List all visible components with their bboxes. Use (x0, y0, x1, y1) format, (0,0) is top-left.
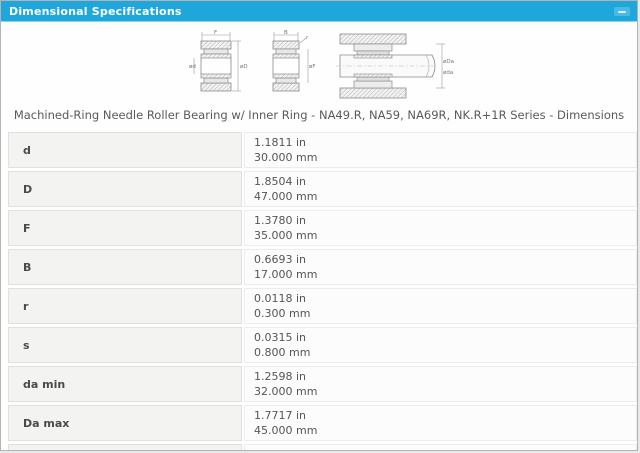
minus-glyph (618, 11, 626, 13)
dimension-value: 0.0118 in 0.300 mm (244, 288, 637, 324)
value-millimeters: 17.000 mm (254, 267, 636, 282)
svg-text:øda: øda (443, 70, 453, 76)
panel-header: Dimensional Specifications (1, 1, 637, 22)
dimension-symbol: d (8, 132, 242, 168)
dimension-symbol: D (8, 171, 242, 207)
dimension-symbol: r (8, 288, 242, 324)
svg-text:F: F (214, 30, 217, 36)
table-row: B 0.6693 in 17.000 mm (8, 249, 637, 285)
dimension-value: 0.0118 in 0.300 mm (244, 444, 637, 451)
bearing-diagrams: F ød øD (1, 29, 637, 101)
dimension-symbol: F (8, 210, 242, 246)
value-millimeters: 0.800 mm (254, 345, 636, 360)
value-millimeters: 45.000 mm (254, 423, 636, 438)
dimensions-table: d 1.1811 in 30.000 mm D 1.8504 in 47.000… (6, 129, 638, 451)
svg-text:øD: øD (240, 64, 248, 70)
dimension-value: 1.7717 in 45.000 mm (244, 405, 637, 441)
value-inches: 1.8504 in (254, 174, 636, 189)
svg-text:r: r (306, 35, 309, 41)
collapse-icon[interactable] (614, 7, 630, 16)
dimension-value: 0.0315 in 0.800 mm (244, 327, 637, 363)
table-row: r 0.0118 in 0.300 mm (8, 288, 637, 324)
panel-body: F ød øD (1, 22, 637, 451)
dimension-symbol: da min (8, 366, 242, 402)
table-row: F 1.3780 in 35.000 mm (8, 210, 637, 246)
dimension-symbol: s (8, 327, 242, 363)
svg-text:øDa: øDa (443, 59, 454, 65)
value-millimeters: 32.000 mm (254, 384, 636, 399)
value-inches: 1.2598 in (254, 369, 636, 384)
dimensional-specifications-panel: Dimensional Specifications F (0, 0, 638, 451)
dimension-value: 0.6693 in 17.000 mm (244, 249, 637, 285)
dimension-value: 1.8504 in 47.000 mm (244, 171, 637, 207)
table-row: s 0.0315 in 0.800 mm (8, 327, 637, 363)
table-row: da min 1.2598 in 32.000 mm (8, 366, 637, 402)
dimension-value: 1.1811 in 30.000 mm (244, 132, 637, 168)
dimension-symbol: B (8, 249, 242, 285)
value-millimeters: 0.300 mm (254, 306, 636, 321)
value-inches: 1.7717 in (254, 408, 636, 423)
svg-text:B: B (284, 30, 288, 36)
value-millimeters: 30.000 mm (254, 150, 636, 165)
bearing-mounted-on-shaft-diagram: øDa øda (332, 31, 450, 101)
svg-text:ød: ød (189, 64, 196, 70)
table-row: d 1.1811 in 30.000 mm (8, 132, 637, 168)
value-inches: 0.0118 in (254, 447, 636, 451)
table-row: ras max 0.0118 in 0.300 mm (8, 444, 637, 451)
value-inches: 0.0315 in (254, 330, 636, 345)
dimension-symbol: ras max (8, 444, 242, 451)
value-millimeters: 47.000 mm (254, 189, 636, 204)
spec-table-body: d 1.1811 in 30.000 mm D 1.8504 in 47.000… (8, 132, 637, 451)
table-row: Da max 1.7717 in 45.000 mm (8, 405, 637, 441)
value-inches: 0.0118 in (254, 291, 636, 306)
bearing-cross-section-diagram: F ød øD (188, 31, 248, 101)
panel-title: Dimensional Specifications (1, 5, 182, 18)
value-millimeters: 35.000 mm (254, 228, 636, 243)
bearing-with-inner-ring-diagram: B r øF (264, 31, 316, 101)
dimension-value: 1.3780 in 35.000 mm (244, 210, 637, 246)
dimension-symbol: Da max (8, 405, 242, 441)
value-inches: 1.1811 in (254, 135, 636, 150)
svg-text:øF: øF (309, 64, 316, 70)
dimension-value: 1.2598 in 32.000 mm (244, 366, 637, 402)
value-inches: 0.6693 in (254, 252, 636, 267)
table-row: D 1.8504 in 47.000 mm (8, 171, 637, 207)
value-inches: 1.3780 in (254, 213, 636, 228)
diagram-caption: Machined-Ring Needle Roller Bearing w/ I… (1, 108, 637, 122)
